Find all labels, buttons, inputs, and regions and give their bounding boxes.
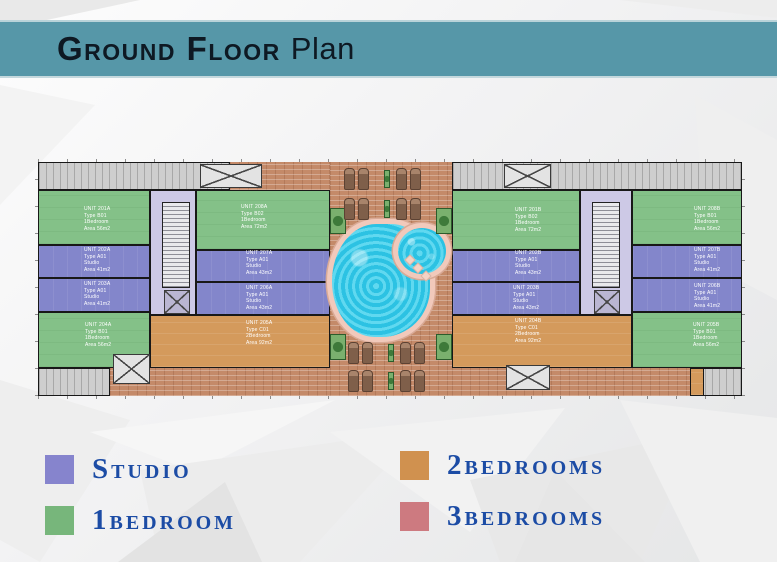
pool-lounger xyxy=(400,370,411,392)
pool-lounger xyxy=(348,342,359,364)
planter-shrub xyxy=(330,334,346,360)
pool-lounger xyxy=(414,370,425,392)
unit-205A xyxy=(150,315,330,368)
unit-label-203B: UNIT 203B Type A01 Studio Area 43m2 xyxy=(513,285,539,311)
legend-label-3bedrooms: 3bedrooms xyxy=(447,502,605,531)
unit-label-205B: UNIT 205B Type B01 1Bedroom Area 56m2 xyxy=(693,322,719,348)
planter-shrub xyxy=(436,208,452,234)
legend-swatch-studio xyxy=(45,455,74,484)
legend-item-studio: Studio xyxy=(45,455,192,484)
legend-swatch-2bedrooms xyxy=(400,451,429,480)
void-box-bottom-right xyxy=(506,365,550,390)
elevator-left xyxy=(164,290,190,314)
pool-lounger xyxy=(348,370,359,392)
void-box-top-right xyxy=(504,164,551,188)
unit-label-203A: UNIT 203A Type A01 Studio Area 41m2 xyxy=(84,281,110,307)
page-title: Ground Floor xyxy=(57,30,281,68)
unit-label-201B: UNIT 201B Type B02 1Bedroom Area 72m2 xyxy=(515,207,541,233)
pool-lounger xyxy=(410,168,421,190)
unit-label-207B: UNIT 207B Type A01 Studio Area 41m2 xyxy=(694,247,720,273)
void-box-bottom-left xyxy=(113,354,150,384)
staircase-right xyxy=(592,202,620,288)
unit-206B xyxy=(632,278,742,312)
planter-shrub xyxy=(436,334,452,360)
storage-room xyxy=(690,368,704,396)
void-box-top-left xyxy=(200,164,262,188)
pool-lounger xyxy=(410,198,421,220)
unit-label-206A: UNIT 206A Type A01 Studio Area 43m2 xyxy=(246,285,272,311)
unit-label-206B: UNIT 206B Type A01 Studio Area 41m2 xyxy=(694,283,720,309)
staircase-left xyxy=(162,202,190,288)
unit-label-201A: UNIT 201A Type B01 1Bedroom Area 56m2 xyxy=(84,206,110,232)
floor-plan: UNIT 201A Type B01 1Bedroom Area 56m2 UN… xyxy=(38,162,742,396)
parking-area-bottom-left xyxy=(38,368,110,396)
pool-lounger xyxy=(362,370,373,392)
page-title-suffix: Plan xyxy=(291,31,355,67)
legend-item-2bedrooms: 2bedrooms xyxy=(400,451,605,480)
pool-lounger xyxy=(414,342,425,364)
pool-lounger xyxy=(396,198,407,220)
pool-lounger xyxy=(344,198,355,220)
unit-label-207A: UNIT 207A Type A01 Studio Area 43m2 xyxy=(246,250,272,276)
unit-207B xyxy=(632,245,742,278)
unit-label-202B: UNIT 202B Type A01 Studio Area 43m2 xyxy=(515,250,541,276)
legend-label-2bedrooms: 2bedrooms xyxy=(447,451,605,480)
legend-swatch-3bedrooms xyxy=(400,502,429,531)
unit-label-205A: UNIT 205A Type C01 2Bedroom Area 92m2 xyxy=(246,320,272,346)
unit-label-204A: UNIT 204A Type B01 1Bedroom Area 56m2 xyxy=(85,322,111,348)
pool-lounger xyxy=(358,168,369,190)
unit-label-204B: UNIT 204B Type C01 2Bedroom Area 92m2 xyxy=(515,318,541,344)
planter-hedge xyxy=(384,170,390,188)
unit-205B xyxy=(632,312,742,368)
legend-swatch-1bedroom xyxy=(45,506,74,535)
pool-lounger xyxy=(344,168,355,190)
planter-hedge xyxy=(388,372,394,390)
legend-label-studio: Studio xyxy=(92,455,192,484)
legend-label-1bedroom: 1bedroom xyxy=(92,506,236,535)
pool-lounger xyxy=(358,198,369,220)
unit-label-208A: UNIT 208A Type B02 1Bedroom Area 72m2 xyxy=(241,204,267,230)
unit-204B xyxy=(452,315,632,368)
unit-label-208B: UNIT 208B Type B01 1Bedroom Area 56m2 xyxy=(694,206,720,232)
unit-label-202A: UNIT 202A Type A01 Studio Area 41m2 xyxy=(84,247,110,273)
title-bar: Ground Floor Plan xyxy=(0,20,777,78)
pool-lounger xyxy=(362,342,373,364)
parking-area-top-right xyxy=(452,162,742,190)
planter-hedge xyxy=(384,200,390,218)
legend-item-1bedroom: 1bedroom xyxy=(45,506,236,535)
elevator-right xyxy=(594,290,620,314)
pool-lounger xyxy=(400,342,411,364)
pool-lounger xyxy=(396,168,407,190)
legend-item-3bedrooms: 3bedrooms xyxy=(400,502,605,531)
planter-hedge xyxy=(388,344,394,362)
unit-208B xyxy=(632,190,742,245)
